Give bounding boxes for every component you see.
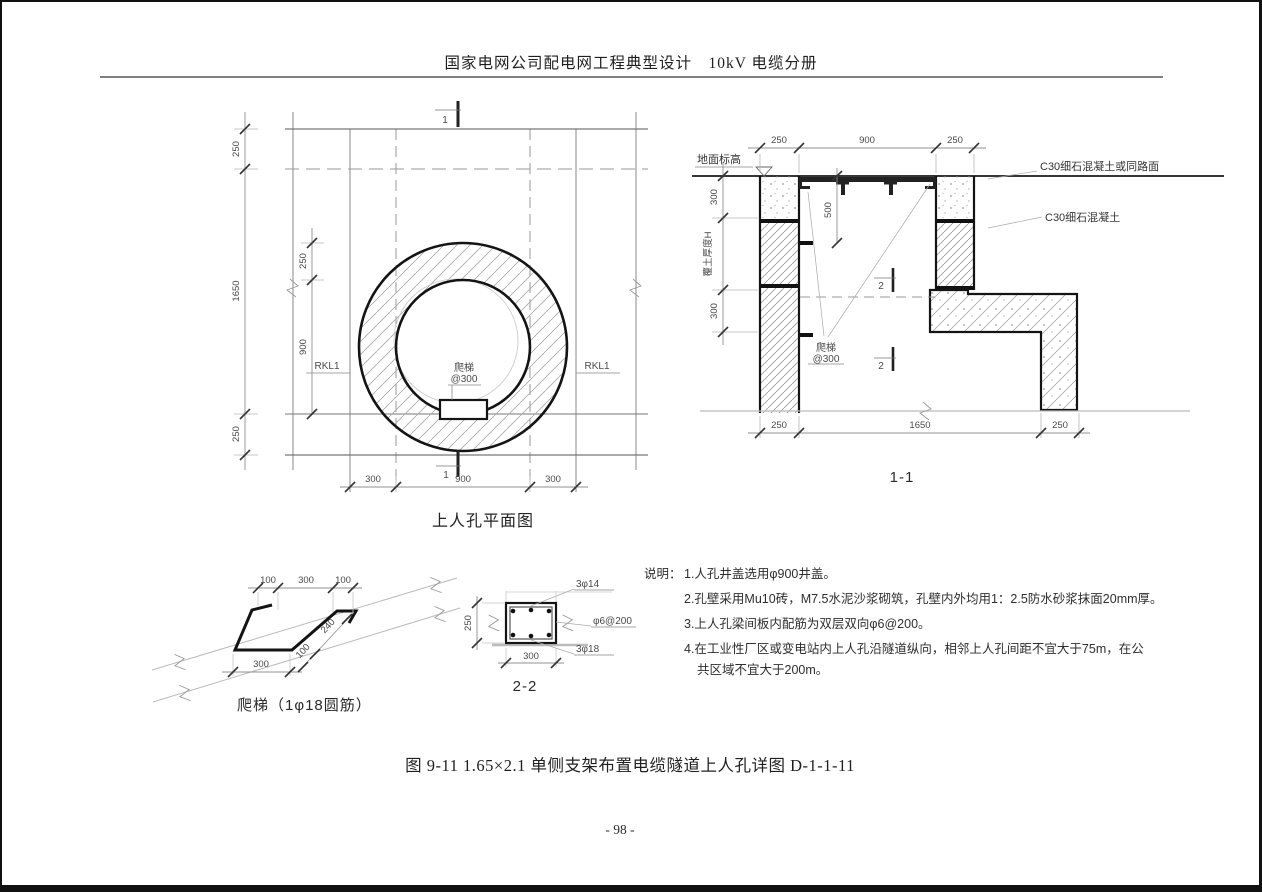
dim-300: 300 — [709, 189, 720, 205]
note-line-4: 4.在工业性厂区或变电站内上人孔沿隧道纵向，相邻上人孔间距不宜大于75m，在公 — [684, 641, 1144, 656]
dim-250: 250 — [298, 253, 309, 269]
beam-label-left-text: RKL1 — [314, 361, 339, 372]
left-wall — [760, 176, 799, 413]
dim-300: 300 — [545, 474, 561, 485]
dim-300: 300 — [253, 659, 269, 670]
surface-label: C30细石混凝土或同路面 — [1040, 159, 1159, 173]
top-rebar-label: 3φ14 — [576, 579, 600, 590]
dim-900: 900 — [298, 339, 309, 355]
dim-1650: 1650 — [231, 280, 242, 301]
dim-300: 300 — [365, 474, 381, 485]
beam-label-right-text: RKL1 — [584, 361, 609, 372]
drawing-canvas: 国家电网公司配电网工程典型设计 10kV 电缆分册 爬梯 — [0, 0, 1262, 892]
ladder-detail-title: 爬梯（1φ18圆筋） — [237, 697, 372, 714]
note-line-2: 2.孔壁采用Mu10砖，M7.5水泥沙浆砌筑，孔壁内外均用1：2.5防水砂浆抹面… — [684, 591, 1163, 606]
dim-250: 250 — [947, 135, 963, 146]
section-marker-number: 2 — [878, 361, 884, 372]
dim-250: 250 — [463, 615, 474, 631]
ladder-note-spacing: @300 — [813, 354, 840, 365]
stirrup-label: φ6@200 — [593, 616, 632, 627]
dim-100: 100 — [335, 575, 351, 586]
ladder-recess-box — [440, 400, 487, 419]
header-title: 国家电网公司配电网工程典型设计 10kV 电缆分册 — [444, 54, 817, 72]
dim-250: 250 — [771, 420, 787, 431]
notes-heading: 说明： — [644, 566, 682, 581]
ladder-rung — [799, 241, 813, 245]
ground-label-text: 地面标高 — [697, 152, 741, 166]
document-sheet: 国家电网公司配电网工程典型设计 10kV 电缆分册 爬梯 — [0, 0, 1262, 892]
plan-title: 上人孔平面图 — [432, 512, 534, 530]
ladder-rung — [799, 333, 813, 337]
dim-250: 250 — [1052, 420, 1068, 431]
cover-depth-label: 覆土厚度H — [702, 231, 714, 276]
dim-300: 300 — [298, 575, 314, 586]
dim-250: 250 — [231, 141, 242, 157]
dim-900: 900 — [859, 135, 875, 146]
dim-1650: 1650 — [909, 420, 930, 431]
figure-caption: 图 9-11 1.65×2.1 单侧支架布置电缆隧道上人孔详图 D-1-1-11 — [405, 756, 855, 775]
section-1-1-title: 1-1 — [890, 469, 915, 486]
dim-250: 250 — [771, 135, 787, 146]
ladder-note-text: 爬梯 — [816, 341, 836, 354]
section-marker-number: 1 — [443, 470, 449, 481]
page-number: - 98 - — [605, 822, 635, 837]
dim-100: 100 — [260, 575, 276, 586]
dim-250: 250 — [231, 426, 242, 442]
right-wall — [936, 176, 974, 290]
bottom-rebar-label: 3φ18 — [576, 644, 600, 655]
dim-900: 900 — [455, 474, 471, 485]
section-marker-number: 1 — [442, 115, 448, 126]
note-line-4-cont: 共区域不宜大于200m。 — [697, 662, 828, 677]
dim-500: 500 — [823, 202, 834, 218]
note-line-3: 3.上人孔梁间板内配筋为双层双向φ6@200。 — [684, 616, 931, 631]
section-marker-number: 2 — [878, 281, 884, 292]
dim-300: 300 — [709, 303, 720, 319]
concrete-label: C30细石混凝土 — [1045, 210, 1120, 224]
ladder-note-text: 爬梯 — [454, 361, 474, 374]
section-2-2-title: 2-2 — [513, 678, 538, 695]
note-line-1: 1.人孔井盖选用φ900井盖。 — [684, 567, 836, 581]
ladder-note-spacing: @300 — [451, 374, 478, 385]
dim-300: 300 — [523, 651, 539, 662]
